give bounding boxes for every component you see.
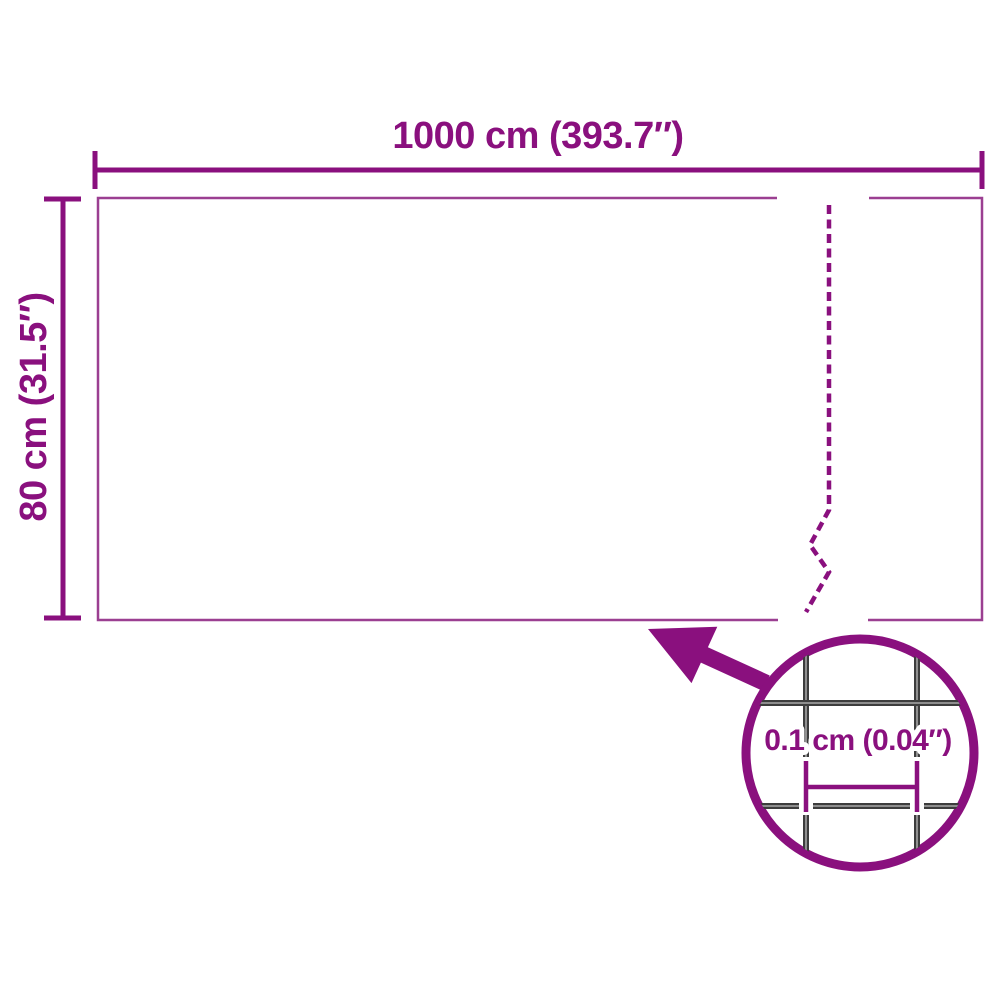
top-width-dimension: 1000 cm (393.7″) — [95, 115, 982, 189]
break-dashed-line — [806, 205, 829, 612]
width-dimension-label: 1000 cm (393.7″) — [392, 115, 683, 157]
magnifier-arrow-icon — [648, 627, 770, 691]
detail-magnifier: 0.1 cm (0.04″) — [744, 637, 976, 869]
dimension-diagram-canvas: 1000 cm (393.7″) 80 cm (31.5″) — [0, 0, 1000, 1000]
panel-outline — [98, 198, 982, 620]
left-height-dimension: 80 cm (31.5″) — [13, 197, 81, 618]
dimension-diagram: 1000 cm (393.7″) 80 cm (31.5″) — [0, 0, 1000, 1000]
height-dimension-label: 80 cm (31.5″) — [13, 292, 55, 521]
detail-dimension-label: 0.1 cm (0.04″) — [764, 724, 951, 757]
